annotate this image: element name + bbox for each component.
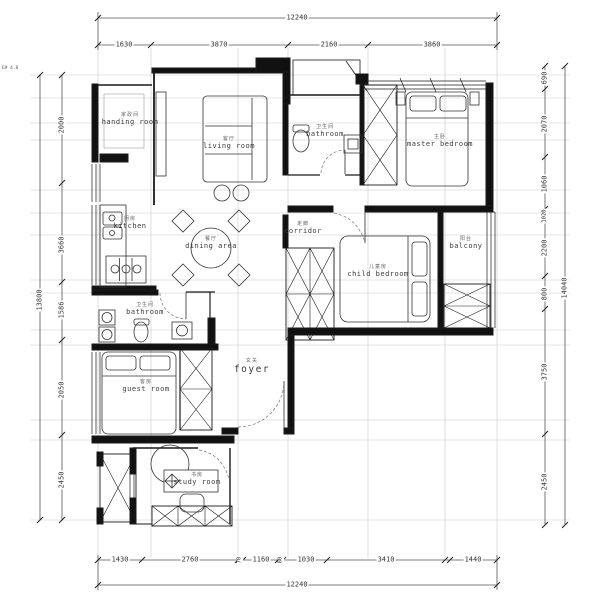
dim-bottom-seg: 1440: [464, 557, 483, 564]
room-label-master: 主卧 master bedroom: [407, 134, 473, 148]
room-label-kitchen: 厨房 kitchen: [113, 216, 146, 230]
room-label-balcony: 阳台 balcony: [449, 236, 482, 250]
dim-right-seg: 3750: [542, 363, 549, 382]
room-label-bathroom2: 卫生间 bathroom: [126, 302, 164, 316]
dim-right-seg: 1060: [542, 175, 549, 194]
pouf: [214, 185, 230, 201]
dim-bottom-seg: 2760: [181, 557, 200, 564]
dim-top-seg: 3870: [210, 42, 229, 49]
dim-bottom-seg: 1160: [252, 557, 271, 564]
room-label-bathroom1: 卫生间 bathroom: [306, 124, 344, 138]
room-label-corridor: 走廊 corridor: [284, 221, 322, 235]
dim-top-total: 12240: [285, 15, 308, 22]
dim-left-seg: 1586: [59, 301, 66, 320]
dim-top-seg: 3860: [423, 42, 442, 49]
dim-left-seg: 3660: [59, 236, 66, 255]
child-bed: [340, 236, 430, 322]
room-label-foyer: 玄关 foyer: [234, 358, 270, 375]
dim-right-seg: 800: [542, 287, 549, 302]
tv-cabinet: [156, 92, 166, 176]
dim-left-seg: 2000: [59, 116, 66, 135]
room-label-handing: 家政间 handing room: [102, 112, 159, 126]
dim-left-seg: 2450: [59, 471, 66, 490]
room-label-guest: 客房 guest room: [122, 379, 169, 393]
dim-right-seg: 2200: [542, 239, 549, 258]
dim-top-seg: 1630: [115, 42, 134, 49]
floorplan-sheet: E# 4.8 12240 1630 3870 2160 3860 1430 27…: [0, 0, 600, 594]
room-label-child: 儿童房 child bedroom: [347, 264, 408, 278]
room-label-study: 书房 study room: [173, 472, 220, 486]
dim-bottom-seg: 80: [278, 556, 284, 565]
dim-bottom-seg: 3410: [377, 557, 396, 564]
room-label-dining: 餐厅 dining area: [185, 236, 237, 250]
dim-right-seg: 1020: [542, 208, 548, 223]
dim-right-seg: 690: [542, 71, 549, 86]
dim-right-seg: 2070: [542, 115, 549, 134]
dim-bottom-seg: 70: [237, 556, 243, 565]
dim-right-seg: 2450: [542, 473, 549, 492]
dim-bottom-seg: 1430: [111, 557, 130, 564]
dim-bottom-total: 12240: [285, 582, 308, 589]
dim-right-total: 14040: [562, 276, 569, 299]
side-note: E# 4.8: [2, 66, 18, 71]
dim-top-seg: 2160: [320, 42, 339, 49]
dim-bottom-seg: 1030: [297, 557, 316, 564]
room-label-living: 客厅 living room: [203, 136, 255, 150]
dim-left-total: 13800: [37, 288, 44, 311]
pouf: [233, 185, 249, 201]
dim-left-seg: 2050: [59, 381, 66, 400]
floorplan-drawing: [0, 0, 600, 594]
door-leaves: [186, 150, 365, 428]
